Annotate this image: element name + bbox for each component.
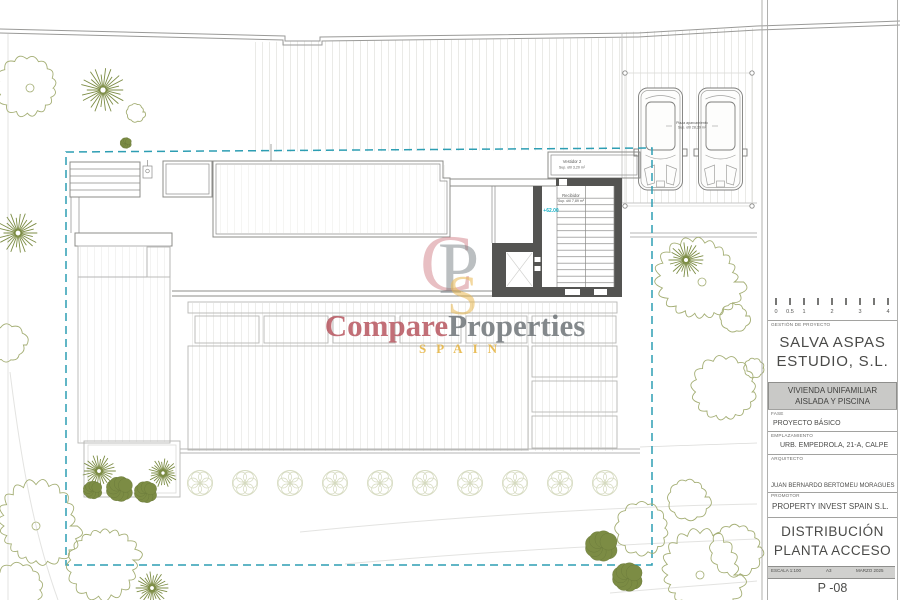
hall-name: Recibidor [562, 193, 580, 198]
watermark-word1: Compare [325, 308, 448, 343]
emplazamiento-value: URB. EMPEDROLA, 21-A, CALPE [780, 442, 888, 449]
company-line1: SALVA ASPAS [768, 333, 897, 352]
svg-text:4: 4 [886, 309, 889, 315]
svg-text:2: 2 [830, 309, 833, 315]
company-line2: ESTUDIO, S.L. [768, 352, 897, 371]
watermark-text: CompareProperties [305, 308, 605, 344]
parking-name: Plaza aparcamiento [676, 121, 708, 125]
floor-level-label: +62.00 [543, 208, 559, 214]
project-line2: AISLADA Y PISCINA [769, 396, 896, 407]
title-block: 00.51234 GESTIÓN DE PROYECTO SALVA ASPAS… [768, 0, 897, 600]
arquitecto-label: ARQUITECTO [771, 457, 803, 462]
room-top-name: Vestidor 2 [563, 159, 582, 164]
project-title: VIVIENDA UNIFAMILIAR AISLADA Y PISCINA [768, 382, 897, 410]
watermark-word2: Properties [448, 308, 585, 343]
car-top-view [694, 88, 747, 190]
promotor-value: PROPERTY INVEST SPAIN S.L. [772, 502, 889, 511]
arquitecto-value: JUAN BERNARDO BERTOMEU MORAGUES [771, 483, 894, 489]
parking-area-label: Sup. útil 28,29 m² [678, 126, 707, 130]
fase-value: PROYECTO BÁSICO [773, 420, 841, 427]
flower-row [188, 471, 618, 496]
hall-area: Sup. útil 7,89 m² [558, 199, 585, 203]
drawing-title-line2: PLANTA ACCESO [768, 543, 897, 558]
fase-label: FASE [771, 412, 784, 417]
scale-bar: 00.51234 [768, 296, 897, 318]
svg-text:3: 3 [858, 309, 861, 315]
project-line1: VIVIENDA UNIFAMILIAR [769, 385, 896, 396]
section-label: GESTIÓN DE PROYECTO [771, 323, 830, 328]
svg-text:0: 0 [774, 309, 777, 315]
watermark-subtitle: SPAIN [378, 341, 548, 357]
emplazamiento-label: EMPLAZAMIENTO [771, 434, 813, 439]
company-name: SALVA ASPAS ESTUDIO, S.L. [768, 333, 897, 371]
room-top-area: Sup. útil 3,20 m² [559, 166, 586, 170]
paper-format: A3 [826, 569, 832, 574]
drawing-title-line1: DISTRIBUCIÓN [768, 524, 897, 539]
title-block-footer: ESCALA 1:100 A3 MARZO 2025 [768, 566, 895, 579]
sheet-number: P -08 [768, 581, 897, 595]
svg-text:1: 1 [802, 309, 805, 315]
date-value: MARZO 2025 [856, 569, 884, 574]
svg-text:0.5: 0.5 [786, 309, 794, 315]
scale-value: ESCALA 1:100 [771, 569, 801, 574]
promotor-label: PROMOTOR [771, 494, 800, 499]
car-top-view [634, 88, 687, 190]
